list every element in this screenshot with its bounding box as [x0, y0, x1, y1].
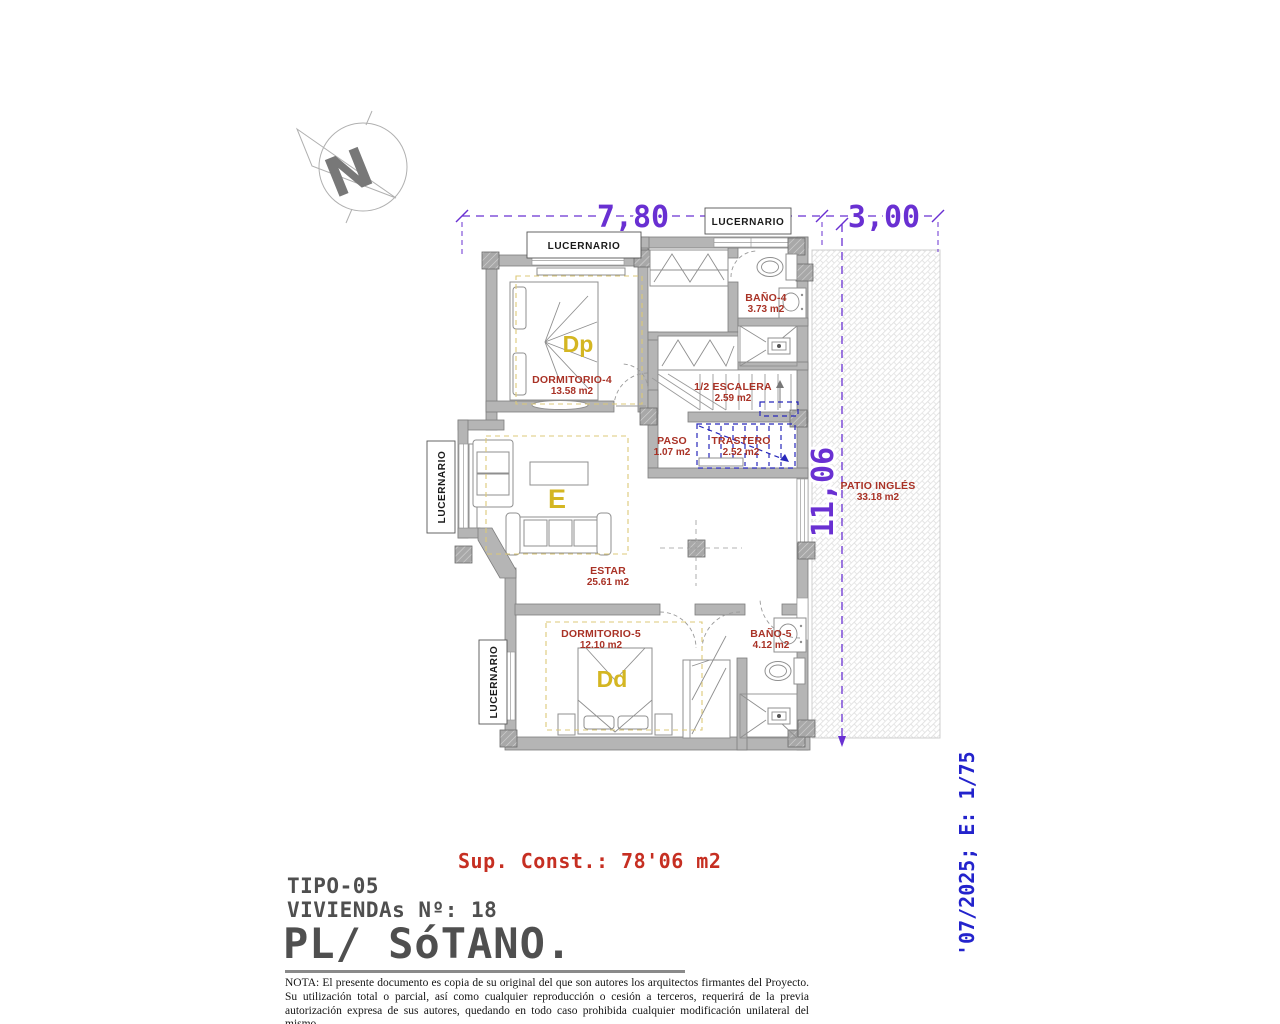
- room-letter-dd: Dd: [597, 666, 628, 692]
- area-estar: 25.61 m2: [587, 577, 630, 588]
- area-paso: 1.07 m2: [654, 447, 691, 458]
- label-bano5: BAÑO-5: [750, 627, 791, 640]
- area-escalera: 2.59 m2: [715, 393, 752, 404]
- area-patio: 33.18 m2: [857, 492, 900, 503]
- label-estar: ESTAR: [590, 565, 626, 577]
- label-trastero: TRASTERO: [711, 435, 770, 447]
- dim-width-main: 7,80: [597, 200, 669, 235]
- built-area-summary: Sup. Const.: 78'06 m2: [458, 849, 721, 873]
- area-trastero: 2.52 m2: [723, 447, 760, 458]
- north-arrow-icon: N: [297, 111, 407, 223]
- skylight-top-center: LUCERNARIO: [712, 217, 785, 228]
- label-dormitorio5: DORMITORIO-5: [561, 628, 641, 640]
- skylight-left-lower: LUCERNARIO: [489, 646, 500, 719]
- area-dormitorio4: 13.58 m2: [551, 386, 594, 397]
- date-scale-label: '07/2025; E: 1/75: [955, 751, 979, 956]
- north-letter: N: [316, 135, 382, 210]
- room-letter-dp: Dp: [563, 331, 594, 357]
- title-divider: [285, 970, 685, 973]
- label-escalera: 1/2 ESCALERA: [694, 381, 772, 393]
- label-paso: PASO: [657, 435, 687, 447]
- floor-plan-sheet: N 7,80 3,00 11,06: [0, 0, 1280, 1024]
- floor-title: PL/ SóTANO.: [283, 919, 572, 968]
- label-bano4: BAÑO-4: [745, 291, 786, 304]
- label-dormitorio4: DORMITORIO-4: [532, 374, 612, 386]
- area-bano4: 3.73 m2: [748, 304, 785, 315]
- closets: [650, 250, 738, 738]
- type-label: TIPO-05: [287, 874, 379, 898]
- label-patio: PATIO INGLÉS: [841, 479, 916, 492]
- area-dormitorio5: 12.10 m2: [580, 640, 623, 651]
- dim-height: 11,06: [806, 447, 841, 537]
- copyright-note: NOTA: El presente documento es copia de …: [285, 977, 809, 1024]
- room-letter-e: E: [548, 484, 566, 514]
- dim-width-patio: 3,00: [848, 200, 920, 235]
- skylight-top-left: LUCERNARIO: [548, 241, 621, 252]
- area-bano5: 4.12 m2: [753, 640, 790, 651]
- skylight-left-upper: LUCERNARIO: [437, 451, 448, 524]
